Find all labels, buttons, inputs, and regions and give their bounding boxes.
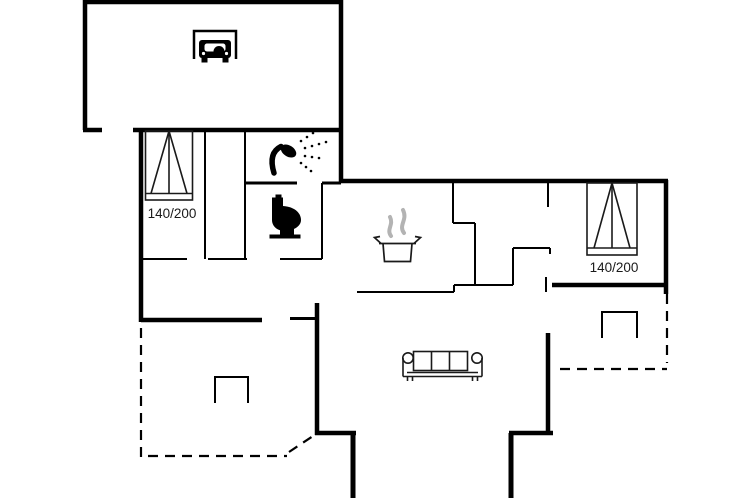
- car-headlight-left: [202, 52, 205, 55]
- bedroom-closet-walls: [205, 130, 245, 260]
- bed-size-label-right: 140/200: [590, 260, 639, 275]
- shower-spray-dots: [300, 132, 328, 173]
- car-garage-icon: [194, 31, 236, 63]
- pot-outline: [375, 237, 421, 262]
- toilet-bowl: [272, 206, 301, 231]
- toilet-stem: [280, 229, 294, 235]
- cooking-pot-icon: [375, 210, 421, 262]
- car-headlight-right: [225, 52, 228, 55]
- terrace-left-outline: [141, 328, 316, 457]
- car-wheel-left: [202, 57, 208, 63]
- interior-walls: [141, 130, 550, 292]
- medium-walls: [245, 183, 341, 319]
- double-bed-icon-left: [146, 131, 193, 200]
- terrace-marker-icon-left: [215, 377, 248, 403]
- sofa-cushions: [414, 352, 468, 371]
- terrace-marker-icon-right: [602, 312, 637, 338]
- double-bed-icon-right: [587, 183, 637, 255]
- toilet-icon: [270, 195, 302, 239]
- shower-arm: [272, 147, 281, 174]
- bed-size-label-left: 140/200: [148, 206, 197, 221]
- pot-handle-left: [375, 237, 382, 244]
- sofa-icon: [403, 352, 482, 382]
- steam-icon: [389, 210, 404, 236]
- sofa-frame: [403, 358, 482, 377]
- sofa-cushion-dividers: [432, 352, 450, 371]
- terrace-right-outline: [560, 294, 667, 369]
- car-wheel-right: [223, 57, 229, 63]
- toilet-knob: [276, 195, 282, 199]
- pot-handle-right: [414, 237, 421, 244]
- floorplan-drawing: 140/200 140/200: [0, 0, 754, 498]
- steam-wisp-left: [389, 217, 391, 236]
- kitchen-hall-walls: [453, 182, 475, 285]
- living-kitchen-partition: [357, 248, 550, 292]
- house-west-wall: [141, 128, 262, 322]
- floorplan-canvas: 140/200 140/200: [0, 0, 754, 498]
- steam-wisp-right: [402, 210, 404, 233]
- sofa-arm-right: [472, 353, 482, 363]
- sofa-arm-left: [403, 353, 413, 363]
- shower-icon: [272, 132, 327, 173]
- toilet-base: [270, 235, 301, 239]
- bay-walls: [353, 433, 511, 498]
- pot-body: [383, 244, 412, 262]
- living-room-walls: [315, 303, 553, 435]
- terrace-markers: [215, 312, 637, 403]
